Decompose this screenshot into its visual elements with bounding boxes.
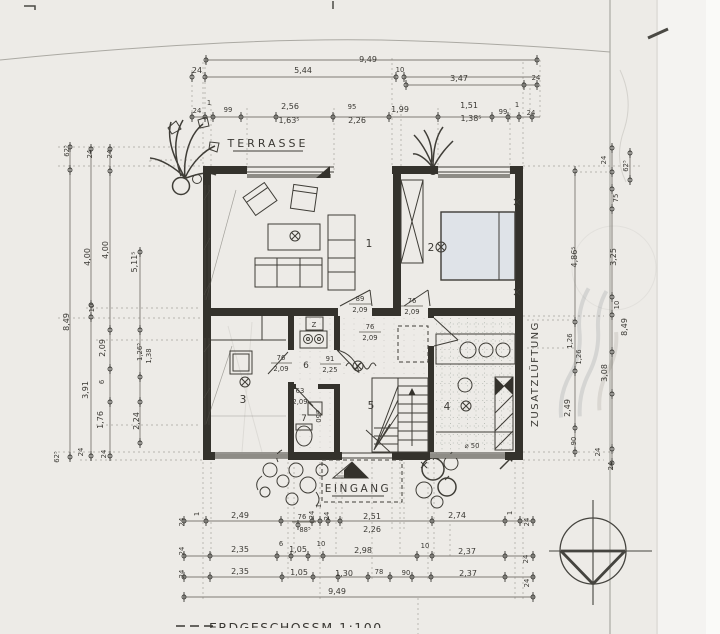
dim-text: 2,09: [98, 339, 107, 357]
dim-text: 1,38: [145, 348, 153, 363]
bed: [441, 212, 515, 280]
door-size: 76: [408, 297, 417, 305]
dim-text: 24: [600, 156, 608, 165]
window-bath-bottom: [430, 453, 505, 458]
plan-title: ERDGESCHOSS M 1:100: [160, 620, 410, 634]
dim-text: 9,49: [328, 587, 346, 596]
door-size: 89: [356, 295, 365, 303]
dim-text: 24: [607, 462, 615, 471]
dim-text: 1,30: [335, 569, 353, 578]
lamp-symbol: [461, 401, 471, 411]
wardrobe: [401, 180, 423, 263]
basin: [458, 378, 472, 392]
dim-text: 1: [515, 101, 519, 109]
dim-text: 10: [88, 304, 96, 313]
dim-text: 2,35: [231, 567, 249, 576]
dim-text: 10: [613, 301, 621, 310]
dim-text: 2,49: [563, 399, 572, 417]
dim-text: 5,44: [294, 66, 312, 75]
room-number-7: 7: [301, 414, 307, 424]
dim-text: 95: [348, 103, 357, 111]
hall-and-stairs: [346, 326, 428, 452]
dim-text: 1,63⁵: [278, 116, 299, 125]
dim-text: 8,49: [62, 313, 71, 331]
window-living-left: [204, 185, 236, 300]
dim-text: 3,47: [450, 74, 468, 83]
dim-text: 3,91: [81, 381, 90, 399]
drain-note-wc: ⌀50: [314, 410, 322, 423]
dim-text: 2,98: [354, 546, 372, 555]
scan-crop-cover: [160, 628, 410, 634]
door-size: 63: [296, 387, 305, 395]
door-size: 76: [366, 323, 375, 331]
dim-text: 24: [594, 448, 602, 457]
door-size: 2,09: [362, 334, 377, 342]
dim-text: 99: [224, 106, 233, 114]
lamp-symbol: [290, 231, 300, 241]
dim-text: 90: [402, 569, 411, 577]
dim-text: 2,24: [132, 412, 141, 430]
floorplan-svg: TERRASSE EINGANG ZUSATZLÜFTUNG Z 1 2 3 4…: [0, 0, 720, 634]
door-leaf-bath: [434, 318, 458, 346]
dimension-markers: [68, 55, 632, 602]
dim-text: 10: [317, 540, 326, 548]
dim-text: 1,38⁵: [460, 114, 481, 123]
dim-text: 24: [193, 107, 202, 115]
dim-text: 2,35: [231, 545, 249, 554]
dim-text: 24: [178, 547, 186, 556]
dims-top: 9,49 24 5,44 10 3,47 24 24 1 99 2,56 1,6…: [192, 55, 540, 125]
sofa: [255, 258, 322, 287]
dim-text: 24: [532, 74, 541, 82]
dim-text: 24: [523, 579, 531, 588]
dim-text: 24: [77, 448, 85, 457]
dim-text: 5,11⁵: [130, 251, 139, 272]
dim-text: 2,26: [348, 116, 366, 125]
dim-text: 88⁵: [299, 526, 311, 534]
dim-text: 62⁵: [53, 451, 61, 463]
dim-text: 1,26: [575, 349, 583, 364]
dim-text: 24: [522, 555, 530, 564]
door-leaf-entrance: [366, 430, 390, 452]
room-number-2: 2: [428, 242, 435, 254]
eingang-label: EINGANG: [325, 483, 391, 495]
dim-text: 2,56: [281, 102, 299, 111]
room-number-1: 1: [366, 238, 373, 250]
scanned-floor-plan: TERRASSE EINGANG ZUSATZLÜFTUNG Z 1 2 3 4…: [0, 0, 720, 634]
dim-text: 76: [298, 513, 307, 521]
basin: [460, 342, 476, 358]
dim-text: 1,99: [391, 105, 409, 114]
dim-text: 10: [421, 542, 430, 550]
dim-text: 90: [570, 437, 578, 446]
dim-text: 24: [523, 518, 531, 527]
flue-label: Z: [312, 321, 317, 329]
dim-text: 2,37: [459, 569, 477, 578]
dim-text: 4,00: [83, 248, 92, 266]
zusatzlueftung-label: ZUSATZLÜFTUNG: [528, 321, 541, 427]
dim-text: 24: [192, 66, 202, 75]
room-number-3: 3: [240, 394, 247, 406]
wall-unit: [328, 215, 355, 290]
dim-text: 3,08: [600, 364, 609, 382]
dim-text: 6: [98, 380, 106, 384]
lamp-symbol: [240, 377, 250, 387]
dims-bottom: 24 1 2,49 76 88⁵ 1 24 24 2,51 2,26 2,74 …: [178, 504, 531, 596]
dim-text: 1,76: [96, 411, 105, 429]
dim-text: 1: [506, 511, 514, 515]
dim-text: 2,74: [448, 511, 466, 520]
dims-left: 62⁵ 8,49 24 4,00 10 3,91 24 24 4,00 2,09…: [53, 145, 153, 463]
dimension-lines: [58, 58, 640, 634]
dim-text: 6: [279, 540, 283, 548]
door-size: 91: [326, 355, 335, 363]
dim-text: 78: [375, 568, 384, 576]
paper-top-edge: [0, 40, 610, 60]
dim-text: 62⁵: [622, 160, 630, 172]
dim-text: 1,51: [460, 101, 478, 110]
dim-text: 2,26: [363, 525, 381, 534]
counter-line: [211, 316, 286, 340]
dim-text: 24: [100, 450, 108, 459]
dim-text: 24: [323, 512, 331, 521]
dim-text: 24: [178, 570, 186, 579]
room-number-5: 5: [368, 400, 375, 412]
plan-labels: TERRASSE EINGANG ZUSATZLÜFTUNG Z 1 2 3 4…: [227, 137, 541, 496]
dim-text: 9,49: [359, 55, 377, 64]
dim-text: 3,25: [609, 248, 618, 266]
dim-text: 10: [396, 66, 405, 74]
dim-text: 1: [315, 504, 323, 508]
door-size: 2,09: [404, 308, 419, 316]
door-size: 76: [277, 354, 286, 362]
dim-text: 1,05: [290, 568, 308, 577]
drain-note-bath: ⌀ 50: [465, 442, 480, 450]
staircase: [372, 378, 428, 452]
shaft-dashed-outline: [398, 326, 428, 362]
radiator-hatch: [495, 377, 513, 450]
door-size: 2,09: [273, 365, 288, 373]
stove: [300, 331, 327, 348]
dim-text: 24: [178, 518, 186, 527]
dim-text: 1,26⁵: [136, 343, 144, 361]
terrasse-label: TERRASSE: [227, 137, 309, 150]
door-size: 2,09: [292, 398, 307, 406]
dims-right: 24 62⁵ 75 4,86⁵ 3,25 10 8,49 1,26 1,26 3…: [563, 156, 630, 471]
entrance-canopy: [333, 462, 368, 478]
armchair: [243, 183, 277, 216]
basin: [479, 343, 493, 357]
basin: [496, 343, 510, 357]
dim-text: 24: [308, 511, 316, 520]
dim-text: 62⁵: [63, 145, 71, 157]
window-bedroom-top: [438, 167, 510, 178]
living-room-furniture: [243, 183, 355, 290]
dim-text: 8,49: [620, 318, 629, 336]
plant-drawing-entrance-right: [416, 452, 458, 508]
dim-text: 4,00: [101, 241, 110, 259]
dim-text: 4,86⁵: [570, 246, 579, 267]
dim-text: 2,49: [231, 511, 249, 520]
dim-text: 1: [193, 512, 201, 516]
dim-text: 2,37: [458, 547, 476, 556]
bathroom-fixtures: [436, 334, 515, 450]
dim-text: 24: [527, 109, 536, 117]
dim-text: 1,05: [289, 545, 307, 554]
door-size: 2,09: [352, 306, 367, 314]
dim-text: 24: [106, 150, 114, 159]
bedroom-furniture: [401, 180, 515, 280]
door-size: 2,25: [322, 366, 337, 374]
north-symbol: [549, 500, 652, 605]
dim-text: 1,26: [566, 333, 574, 348]
armchair: [290, 184, 317, 211]
room-number-6: 6: [303, 361, 309, 371]
dim-text: 24: [86, 150, 94, 159]
dim-text: 99: [499, 108, 508, 116]
stair-direction-arrow: [409, 388, 416, 395]
dim-text: 75: [612, 194, 620, 203]
room-number-4: 4: [444, 401, 451, 413]
dim-text: 2,51: [363, 512, 381, 521]
dim-text: 1: [207, 99, 211, 107]
